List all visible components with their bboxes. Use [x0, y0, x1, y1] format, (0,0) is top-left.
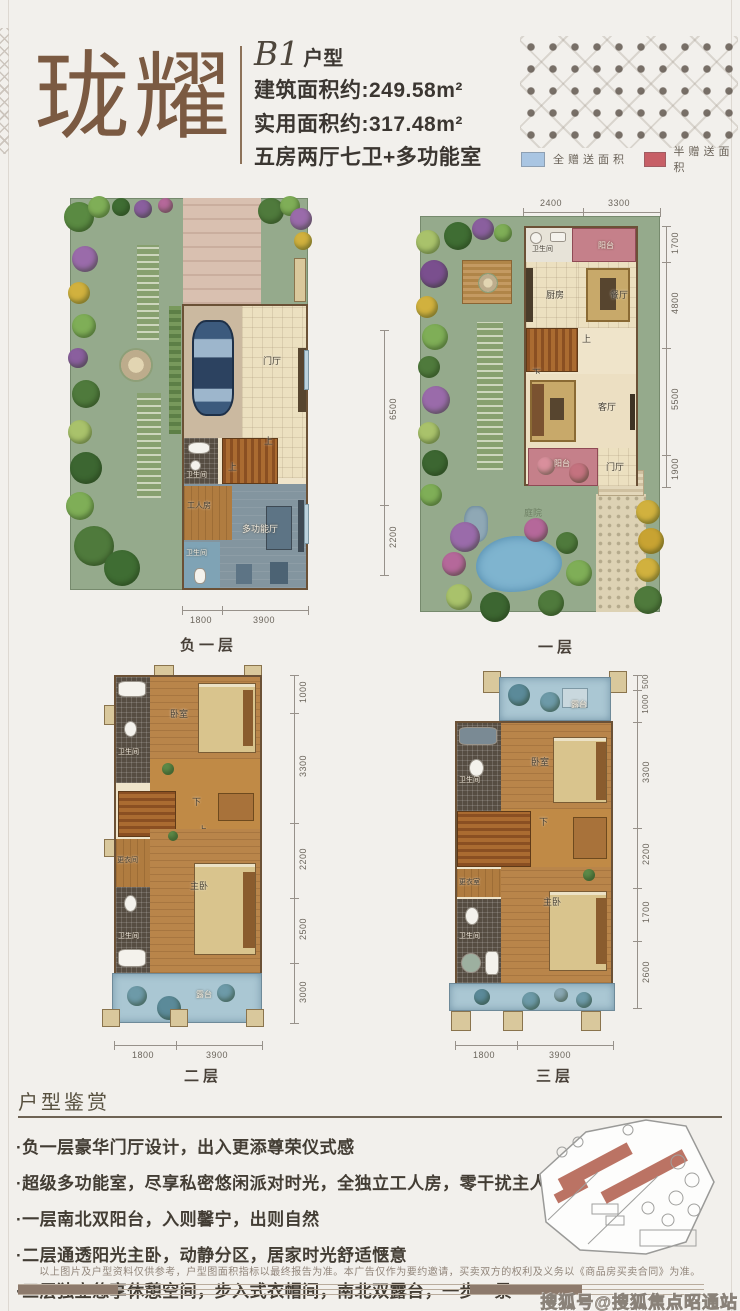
room-label-dining: 餐厅 — [610, 288, 628, 301]
usable-area: 实用面积约:317.48m² — [254, 108, 463, 138]
kitchen-counter — [526, 268, 533, 322]
bar-block — [18, 1285, 118, 1294]
dim-2200: 2200 — [388, 526, 398, 548]
built-area: 建筑面积约:249.58m² — [254, 74, 463, 104]
terrace-plant — [522, 992, 540, 1010]
tree — [104, 550, 140, 586]
pillar — [246, 1009, 264, 1027]
feature-list: ·负一层豪华门厅设计，出入更添尊荣仪式感 ·超级多功能室，尽享私密悠闲派对时光，… — [16, 1130, 536, 1310]
dim-tick — [662, 455, 671, 456]
dim-3900: 3900 — [253, 615, 275, 625]
dim-1700: 1700 — [670, 232, 680, 254]
room-label-entry: 门厅 — [263, 354, 281, 367]
pillar — [503, 1011, 523, 1031]
flower-bush — [537, 457, 555, 475]
disclaimer-text: 以上图片及户型资料仅供参考，户型图面积指标以最终报告为准。本广告仅作为要约邀请，… — [0, 1263, 740, 1278]
legend-full-gift: 全赠送面积 — [521, 151, 628, 167]
tree — [538, 590, 564, 616]
legend-red-label: 半赠送面积 — [674, 143, 740, 175]
room-label-balcony-s: 阳台 — [554, 458, 570, 469]
tree — [294, 232, 312, 250]
entry-porch — [294, 258, 306, 302]
tree — [418, 356, 440, 378]
dim-2500: 2500 — [298, 918, 308, 940]
master-floor — [150, 829, 260, 973]
tree — [418, 422, 440, 444]
garden-plaza — [119, 348, 153, 382]
tree — [134, 200, 152, 218]
room-label-bath1: 卫生间 — [118, 747, 139, 757]
driveway — [183, 198, 261, 304]
dim-3000: 3000 — [298, 981, 308, 1003]
dim-2200: 2200 — [641, 843, 651, 865]
dim-tick — [290, 675, 299, 676]
floor-plan-first: 2400 3300 — [420, 198, 740, 660]
plan-caption-third: 三层 — [536, 1065, 574, 1086]
dim-3300: 3300 — [641, 761, 651, 783]
dim-2600: 2600 — [641, 961, 651, 983]
chair — [236, 564, 252, 584]
terrace-plant — [217, 984, 235, 1002]
tree — [88, 196, 110, 218]
stair-up-label: 上 — [582, 332, 591, 345]
floor-plan-basement: 门厅 上 上 卫生间 工人房 多功能厅 卫生间 6500 2200 — [70, 198, 400, 660]
plant-icon — [168, 831, 178, 841]
room-label-terrace-n: 露台 — [571, 699, 587, 710]
dim-1800: 1800 — [473, 1050, 495, 1060]
dim-3900: 3900 — [549, 1050, 571, 1060]
decor-grid-pattern — [520, 36, 738, 148]
unit-code: B1 — [254, 34, 299, 73]
plant-icon — [583, 869, 595, 881]
terrace-plant — [576, 992, 592, 1008]
dim-tick — [633, 941, 642, 942]
room-label-kitchen: 厨房 — [546, 288, 564, 301]
tree — [566, 560, 592, 586]
stair-up-label: 上 — [264, 434, 273, 447]
room-label-bath2: 卫生间 — [118, 931, 139, 941]
poster-page: 珑耀 B1户型 建筑面积约:249.58m² 实用面积约:317.48m² 五房… — [0, 0, 740, 1311]
headboard — [243, 872, 255, 948]
dim-3300: 3300 — [298, 755, 308, 777]
page-edge-left — [8, 0, 9, 1311]
room-label-terrace: 露台 — [196, 989, 212, 1000]
tree — [420, 260, 448, 288]
sofa — [532, 384, 544, 436]
tree — [446, 584, 472, 610]
dim-500: 500 — [641, 674, 650, 689]
room-label-courtyard: 庭院 — [524, 506, 542, 519]
room-label-bath2: 卫生间 — [186, 548, 207, 558]
toilet-icon — [194, 568, 206, 584]
dim-2200: 2200 — [298, 848, 308, 870]
pillar — [170, 1009, 188, 1027]
layout-summary: 五房两厅七卫+多功能室 — [254, 141, 482, 171]
legend-red-swatch — [644, 152, 666, 167]
room-label-bath1: 卫生间 — [459, 775, 480, 785]
dim-tick — [633, 690, 642, 691]
tree — [158, 198, 173, 213]
tree — [72, 314, 96, 338]
room-label-master: 主卧 — [190, 879, 208, 892]
tree — [636, 500, 660, 524]
living-floor — [526, 374, 636, 448]
dim-tick — [290, 1023, 299, 1024]
dim-1700: 1700 — [641, 901, 651, 923]
room-label-worker: 工人房 — [187, 500, 211, 511]
bedroom-floor — [501, 723, 611, 809]
terrace-plant — [508, 684, 530, 706]
room-label-bath2: 卫生间 — [459, 931, 480, 941]
dim-line — [455, 1045, 613, 1046]
tree — [68, 420, 92, 444]
pillar — [451, 1011, 471, 1031]
room-label-entry: 门厅 — [606, 460, 624, 473]
bedroom-floor — [150, 677, 260, 759]
dim-tick — [380, 330, 389, 331]
tree — [68, 348, 88, 368]
dim-1900: 1900 — [670, 458, 680, 480]
dim-tick — [455, 1041, 456, 1050]
garden-table — [478, 273, 498, 293]
dim-2400: 2400 — [540, 198, 562, 208]
plan-caption-first: 一层 — [538, 636, 576, 657]
tree — [444, 222, 472, 250]
stair-down-label: 下 — [192, 795, 201, 808]
dim-tick — [633, 888, 642, 889]
garden-steps — [477, 322, 503, 470]
dim-tick — [613, 1041, 614, 1050]
dim-1800: 1800 — [190, 615, 212, 625]
bathroom-2 — [457, 899, 501, 983]
tree — [422, 324, 448, 350]
dim-tick — [290, 898, 299, 899]
tree — [416, 296, 438, 318]
terrace-plant — [127, 986, 147, 1006]
dim-tick — [262, 1041, 263, 1050]
chair — [270, 562, 288, 584]
dim-tick — [662, 487, 671, 488]
garden-steps — [137, 393, 161, 498]
headboard — [243, 690, 253, 746]
dim-tick — [380, 575, 389, 576]
plant-icon — [162, 763, 174, 775]
dim-tick — [290, 963, 299, 964]
pond — [476, 536, 562, 592]
dim-1000: 1000 — [641, 694, 650, 714]
cabinet — [573, 817, 607, 859]
terrace-plant — [554, 988, 568, 1002]
room-label-living: 客厅 — [598, 400, 616, 413]
dim-tick — [114, 1041, 115, 1050]
terrace-south — [449, 983, 615, 1011]
tree — [72, 380, 100, 408]
tree — [556, 532, 578, 554]
window — [304, 504, 309, 544]
room-label-closet: 更衣间 — [117, 855, 138, 865]
dim-4800: 4800 — [670, 292, 680, 314]
hedge — [169, 306, 181, 434]
dim-tick — [660, 208, 661, 217]
tree — [72, 246, 98, 272]
dim-tick — [290, 823, 299, 824]
terrace-plant — [540, 692, 560, 712]
room-label-bedroom: 卧室 — [531, 755, 549, 768]
room-label-balcony-n: 阳台 — [598, 240, 614, 251]
flower-bush — [442, 552, 466, 576]
flower-bush — [569, 463, 589, 483]
tree — [422, 450, 448, 476]
garden-deck — [462, 260, 512, 304]
tree — [420, 484, 442, 506]
bed — [194, 863, 256, 955]
flower-bush — [450, 522, 480, 552]
headboard — [596, 898, 607, 964]
tree — [66, 492, 94, 520]
dim-line — [384, 330, 385, 575]
tree — [416, 230, 440, 254]
coffee-table — [550, 398, 564, 420]
dim-3900: 3900 — [206, 1050, 228, 1060]
basin-icon — [461, 953, 481, 973]
dim-line — [114, 1045, 262, 1046]
room-label-closet: 更衣室 — [459, 877, 480, 887]
tree — [290, 208, 312, 230]
room-label-master: 主卧 — [543, 895, 561, 908]
worker-room-floor — [184, 486, 232, 540]
bathroom-1 — [116, 677, 150, 783]
pillar — [102, 1009, 120, 1027]
tree — [494, 224, 512, 242]
feature-item: ·负一层豪华门厅设计，出入更添尊荣仪式感 — [16, 1130, 536, 1166]
legend-blue-swatch — [521, 152, 545, 167]
tv-cabinet — [630, 394, 635, 430]
room-label-bedroom: 卧室 — [170, 707, 188, 720]
feature-item: ·一层南北双阳台，入则馨宁，出则自然 — [16, 1202, 536, 1238]
dim-tick — [662, 226, 671, 227]
plan-caption-second: 二层 — [184, 1065, 222, 1086]
tree — [638, 528, 664, 554]
dim-line — [182, 610, 308, 611]
toilet-icon — [124, 895, 137, 912]
tub-icon — [118, 949, 146, 967]
tree — [112, 198, 130, 216]
flower-bush — [524, 518, 548, 542]
tree — [634, 586, 662, 614]
sink-icon — [485, 951, 499, 975]
dim-tick — [290, 713, 299, 714]
legend-half-gift: 半赠送面积 — [644, 151, 740, 167]
bathroom-2 — [116, 887, 150, 973]
header-divider — [240, 46, 242, 164]
watermark: 搜狐号@搜狐焦点昭通站 — [540, 1288, 738, 1311]
stair-up-label: 上 — [228, 460, 237, 473]
car — [192, 320, 234, 416]
sink-icon — [550, 232, 566, 242]
dim-tick — [222, 606, 223, 615]
dim-tick — [517, 1041, 518, 1050]
tub-icon — [459, 727, 497, 745]
legend-blue-label: 全赠送面积 — [553, 151, 628, 167]
dim-3300: 3300 — [608, 198, 630, 208]
stair-down-label: 下 — [539, 815, 548, 828]
toilet-icon — [530, 232, 542, 244]
section-title: 户型鉴赏 — [18, 1086, 110, 1115]
terrace-north — [499, 677, 611, 721]
dim-tick — [182, 606, 183, 615]
tree — [472, 218, 494, 240]
headboard — [596, 742, 606, 800]
master-floor — [501, 867, 611, 983]
dim-tick — [380, 505, 389, 506]
toilet-icon — [465, 907, 479, 925]
room-label-bath: 卫生间 — [532, 244, 553, 254]
tree — [68, 282, 90, 304]
pillar — [609, 671, 627, 693]
toilet-icon — [124, 721, 137, 737]
desk — [218, 793, 254, 821]
dim-line — [294, 675, 295, 1023]
dim-1000: 1000 — [298, 681, 308, 703]
dim-tick — [633, 828, 642, 829]
tree — [480, 592, 510, 622]
garden-steps — [137, 245, 159, 340]
room-label-multi: 多功能厅 — [242, 522, 278, 535]
bed — [198, 683, 256, 753]
left-cross-pattern — [0, 28, 9, 154]
dim-1800: 1800 — [132, 1050, 154, 1060]
dim-tick — [662, 348, 671, 349]
project-title: 珑耀 — [34, 40, 234, 155]
feature-item: ·超级多功能室，尽享私密悠闲派对时光，全独立工人房，零干扰主人生活 — [16, 1166, 536, 1202]
window — [304, 350, 309, 390]
dim-tick — [633, 722, 642, 723]
terrace-plant — [474, 989, 490, 1005]
dim-line — [523, 212, 660, 213]
tub-icon — [188, 442, 210, 454]
stairs — [457, 811, 531, 867]
tree — [70, 452, 102, 484]
tub-icon — [118, 681, 146, 697]
dim-tick — [633, 1008, 642, 1009]
tree — [636, 558, 660, 582]
site-plan-illustration — [528, 1112, 724, 1264]
bed — [553, 737, 607, 803]
floor-plan-second: 卧室 卫生间 下 上 更衣间 主卧 卫生间 — [98, 663, 335, 1083]
dim-tick — [662, 262, 671, 263]
dim-line — [666, 226, 667, 487]
unit-suffix: 户型 — [303, 48, 343, 70]
dim-tick — [308, 606, 309, 615]
dim-tick — [176, 1041, 177, 1050]
tree — [422, 386, 450, 414]
dim-5500: 5500 — [670, 388, 680, 410]
dim-line — [637, 675, 638, 1008]
bathroom-1 — [457, 723, 501, 811]
room-label-bath1: 卫生间 — [186, 470, 207, 480]
unit-type-line: B1户型 — [254, 34, 343, 73]
pillar — [581, 1011, 601, 1031]
dim-6500: 6500 — [388, 398, 398, 420]
plan-caption-basement: 负一层 — [180, 634, 237, 655]
floor-plan-third: 露台 卫生间 卧室 下 更衣室 主卧 — [433, 663, 683, 1083]
